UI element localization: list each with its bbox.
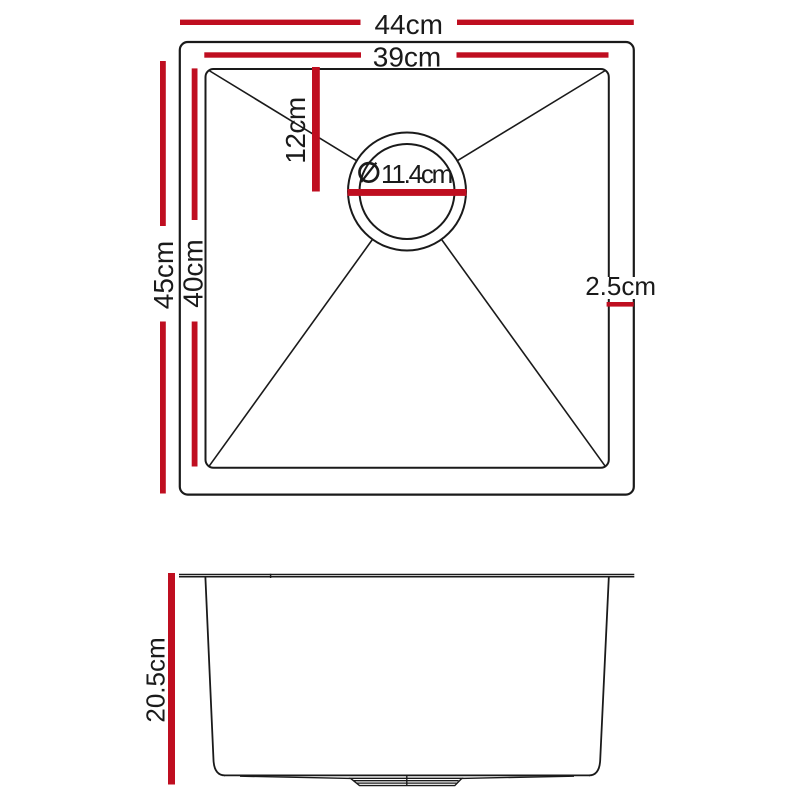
svg-text:40cm: 40cm bbox=[178, 239, 209, 307]
svg-text:20.5cm: 20.5cm bbox=[141, 637, 171, 722]
svg-text:11.4cm: 11.4cm bbox=[381, 159, 452, 189]
svg-text:12cm: 12cm bbox=[280, 97, 311, 163]
svg-text:2.5cm: 2.5cm bbox=[585, 271, 656, 301]
svg-text:39cm: 39cm bbox=[373, 41, 441, 72]
svg-text:44cm: 44cm bbox=[374, 9, 442, 40]
svg-text:45cm: 45cm bbox=[148, 241, 179, 309]
